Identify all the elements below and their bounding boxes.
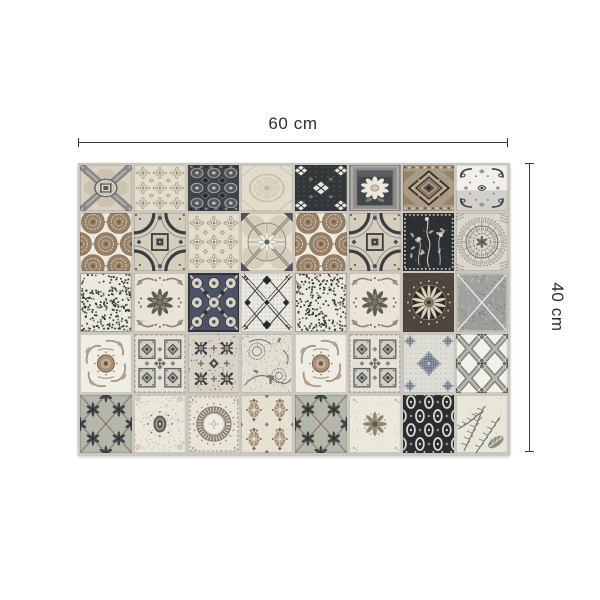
- tile-diamond-taupe: [403, 165, 455, 211]
- tile-fern-leaves: [456, 395, 508, 453]
- tile-octagon-grid: [349, 334, 401, 393]
- tile-damask-brown: [241, 395, 293, 453]
- tile-octagon-grid: [134, 334, 186, 393]
- tile-kaleido-navy: [188, 273, 240, 332]
- height-dimension-tick-bottom: [525, 451, 534, 452]
- width-dimension-line: [78, 142, 508, 143]
- width-dimension-tick-left: [78, 138, 79, 147]
- tile-lace-circles: [80, 213, 132, 271]
- tile-paisley-dense: [241, 334, 293, 393]
- tile-sage-diamond-floral: [295, 395, 347, 453]
- tile-rosette-swirl: [349, 273, 401, 332]
- width-dimension-tick-right: [507, 138, 508, 147]
- height-dimension-tick-top: [525, 163, 534, 164]
- tile-botanical-dark: [403, 213, 455, 271]
- tile-ogee-dark: [403, 395, 455, 453]
- tile-scroll-corners: [456, 165, 508, 211]
- tile-radiant-medallion-dark: [403, 273, 455, 332]
- tile-floral-lattice: [188, 213, 240, 271]
- tile-faded-ornament: [241, 165, 293, 211]
- tile-checker-x: [241, 273, 293, 332]
- tile-sage-diamond-floral: [80, 395, 132, 453]
- tile-astroid-frame: [134, 213, 186, 271]
- tile-compass-circle: [241, 213, 293, 271]
- tile-mesh-diagonal: [456, 273, 508, 332]
- height-dimension-line: [529, 163, 530, 452]
- tile-dense-geometric-dark: [188, 165, 240, 211]
- tile-floral-lattice: [134, 165, 186, 211]
- tile-wreath-circle: [188, 395, 240, 453]
- tile-quatrefoil-trellis: [456, 334, 508, 393]
- tile-noise-maze: [295, 273, 347, 332]
- width-dimension-label: 60 cm: [78, 114, 508, 134]
- tile-rosette-swirl: [134, 273, 186, 332]
- tile-framed-flower: [349, 165, 401, 211]
- tile-rose-swirl-medallion: [295, 334, 347, 393]
- tile-diagonal-cross-medallion: [80, 165, 132, 211]
- height-dimension-label: 40 cm: [547, 282, 567, 331]
- tile-star-cross-dark: [295, 165, 347, 211]
- tile-rosette-light: [349, 395, 401, 453]
- tile-mat: [78, 163, 510, 455]
- tile-speckle-medallion: [134, 395, 186, 453]
- tile-noise-maze: [80, 273, 132, 332]
- product-image: 60 cm 40 cm: [0, 0, 600, 600]
- tile-lace-medallion: [456, 213, 508, 271]
- tile-snowflake-pixel: [403, 334, 455, 393]
- tile-rose-swirl-medallion: [80, 334, 132, 393]
- tile-kaleido-dense: [188, 334, 240, 393]
- tile-grid: [78, 163, 510, 455]
- tile-lace-circles: [295, 213, 347, 271]
- tile-astroid-frame: [349, 213, 401, 271]
